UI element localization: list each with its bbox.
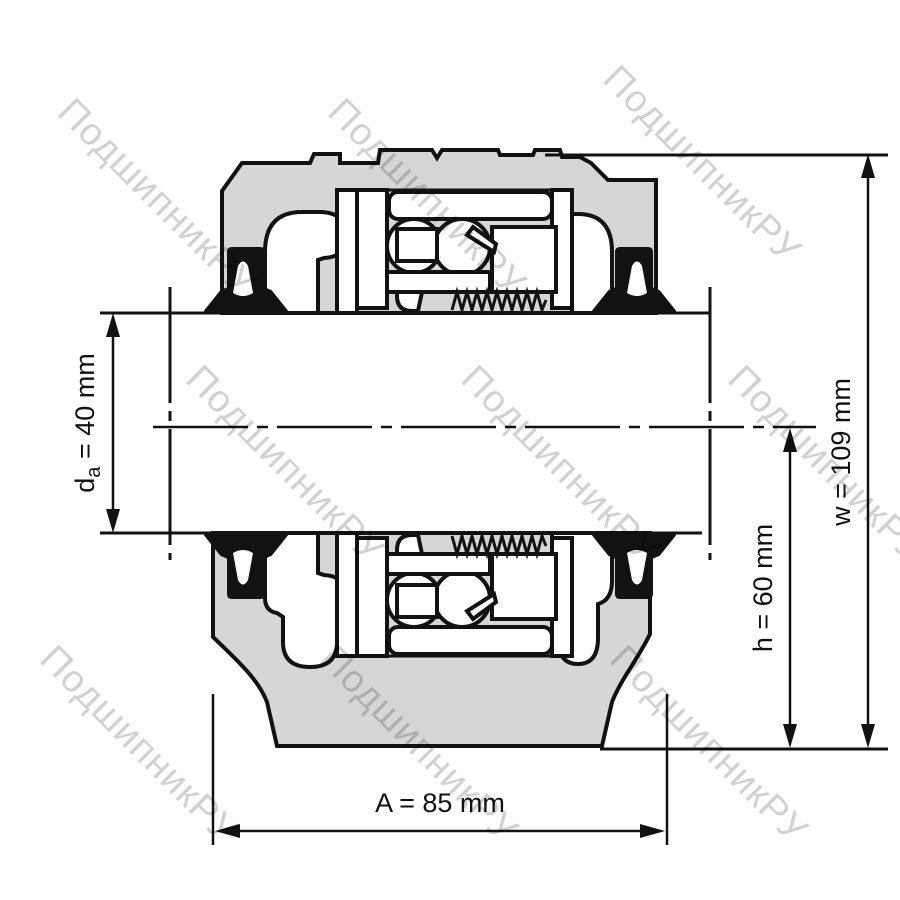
- bearing-housing-drawing: da = 40 mm h = 60 mm w = 109 mm A = 85 m…: [0, 0, 900, 900]
- dimension-h-label: h = 60 mm: [748, 524, 778, 652]
